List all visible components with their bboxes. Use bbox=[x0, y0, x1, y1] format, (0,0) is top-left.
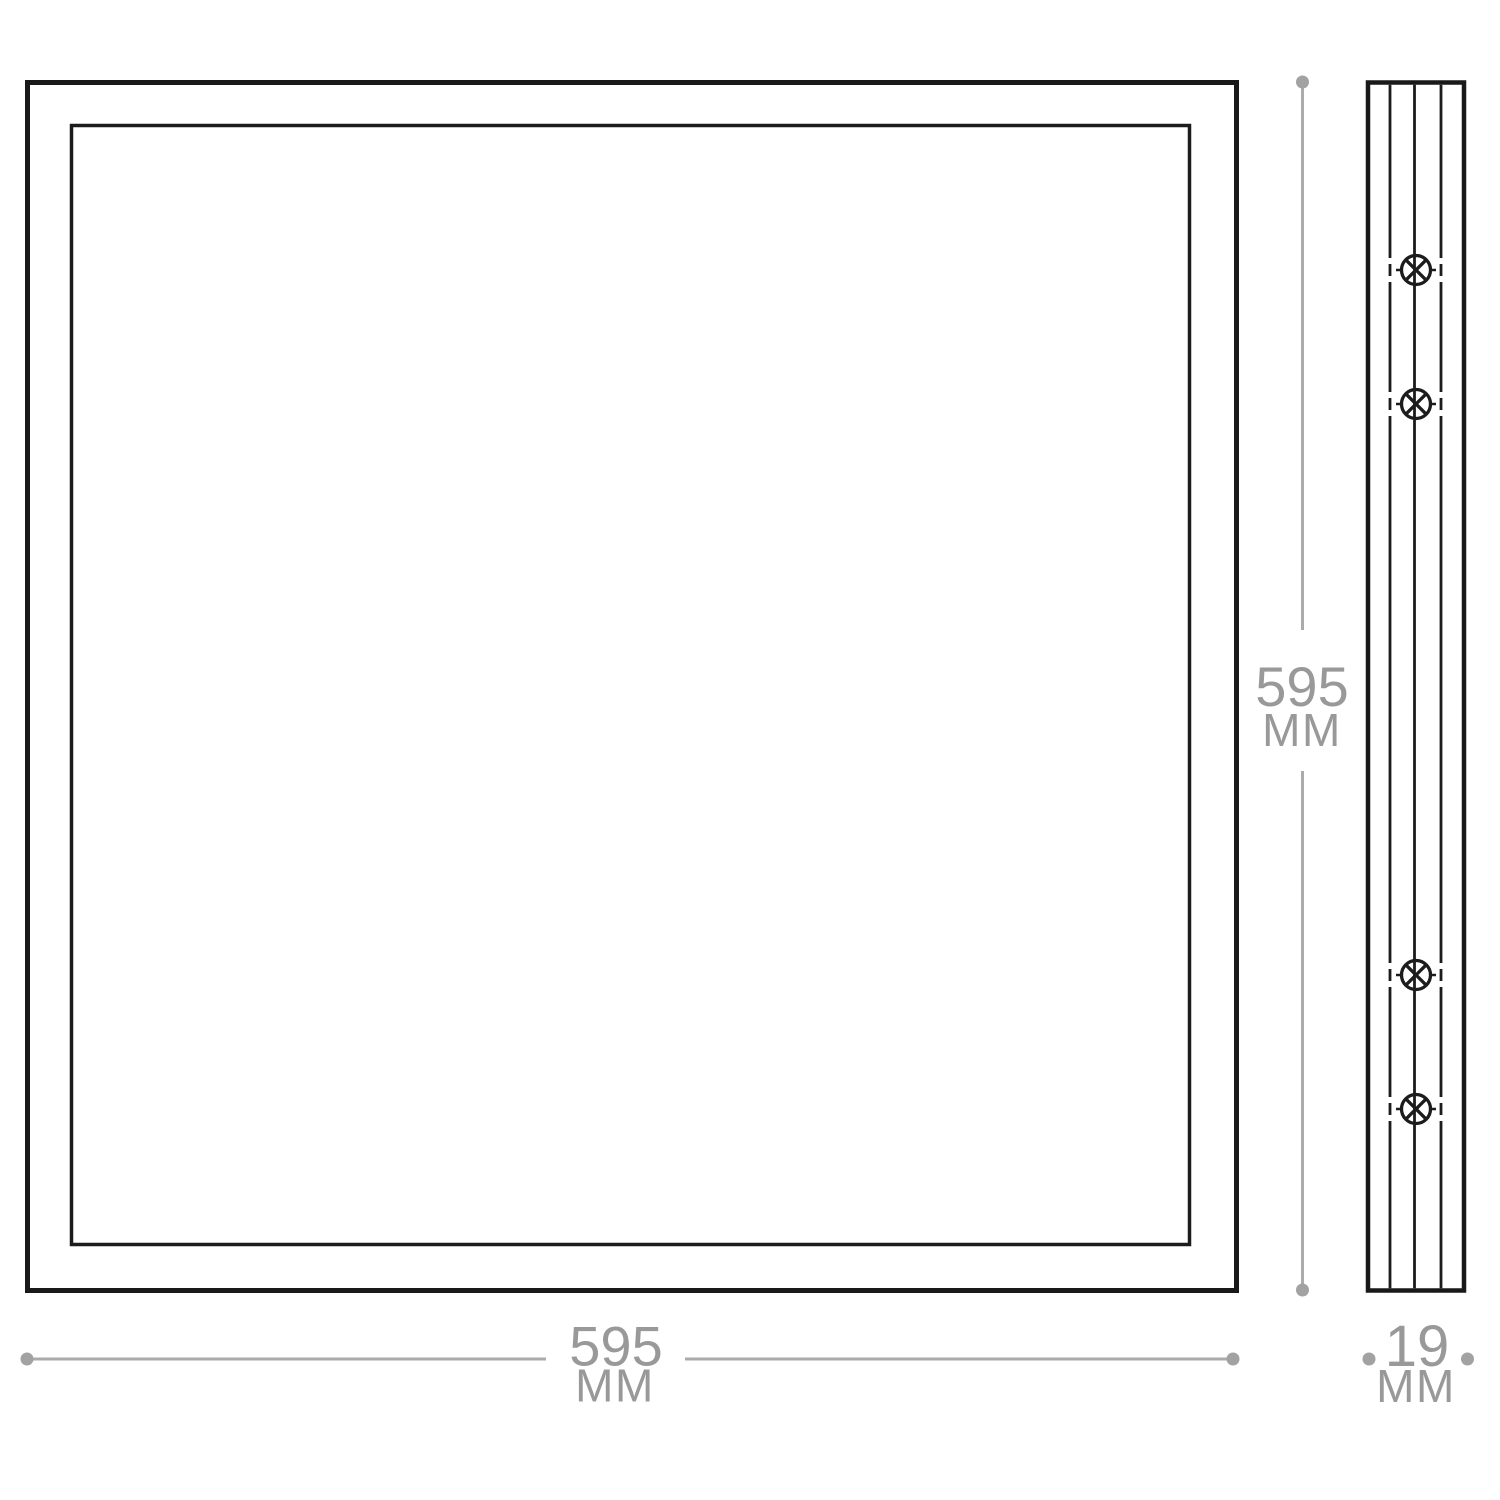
svg-text:MM: MM bbox=[575, 1360, 655, 1412]
svg-text:MM: MM bbox=[1262, 704, 1342, 756]
svg-text:MM: MM bbox=[1376, 1360, 1456, 1412]
